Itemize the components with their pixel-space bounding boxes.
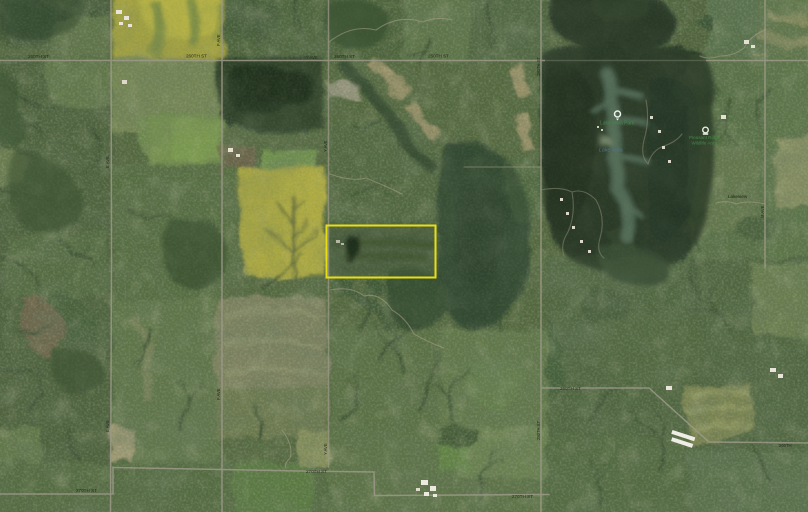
- svg-text:F AVE: F AVE: [216, 34, 221, 46]
- svg-text:260TH ST: 260TH ST: [428, 54, 449, 59]
- svg-text:260TH ST: 260TH ST: [334, 54, 355, 59]
- svg-text:260TH ST: 260TH ST: [28, 54, 49, 59]
- svg-text:270TH ST: 270TH ST: [512, 494, 533, 499]
- svg-text:260TH: 260TH: [779, 443, 792, 448]
- svg-text:280TH ST: 280TH ST: [536, 420, 541, 440]
- svg-text:Pleasant Ridge: Pleasant Ridge: [689, 135, 721, 140]
- svg-text:Lake Iowa: Lake Iowa: [599, 148, 623, 154]
- svg-text:Lake Iowa Park: Lake Iowa Park: [600, 121, 635, 127]
- svg-text:M AVE: M AVE: [760, 205, 765, 218]
- svg-text:F AVE: F AVE: [216, 388, 221, 400]
- svg-text:Y AVE: Y AVE: [306, 55, 318, 60]
- svg-text:E AVE: E AVE: [105, 156, 110, 168]
- svg-text:280TH ST: 280TH ST: [536, 56, 541, 76]
- svg-text:Y AVE: Y AVE: [323, 443, 328, 455]
- svg-text:E AVE: E AVE: [105, 420, 110, 432]
- svg-text:270TH ST: 270TH ST: [76, 488, 97, 493]
- svg-text:270TH ST: 270TH ST: [306, 469, 327, 474]
- svg-text:Lakeview: Lakeview: [728, 194, 748, 199]
- svg-text:260TH ST: 260TH ST: [186, 54, 207, 59]
- svg-text:Wildlife Area: Wildlife Area: [692, 141, 718, 146]
- svg-text:260TH ST: 260TH ST: [560, 386, 581, 391]
- svg-text:Y AVE: Y AVE: [323, 140, 328, 152]
